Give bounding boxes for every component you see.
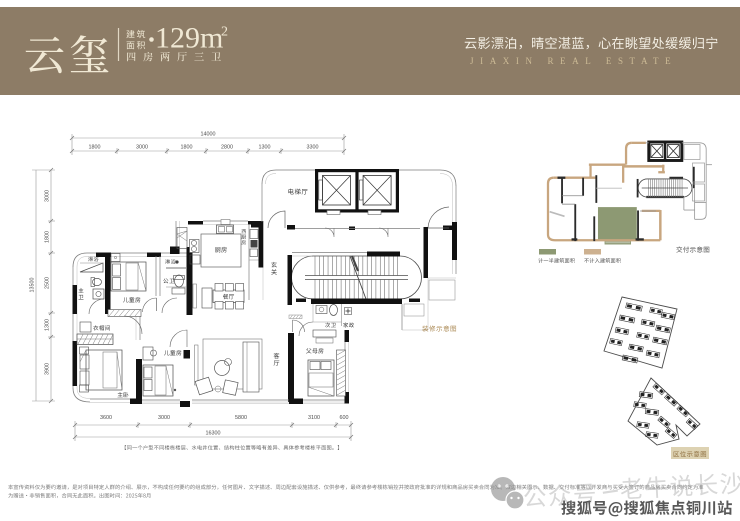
svg-text:14000: 14000 bbox=[201, 132, 216, 138]
svg-text:3100: 3100 bbox=[308, 415, 320, 421]
svg-text:2: 2 bbox=[221, 25, 228, 40]
svg-text:3900: 3900 bbox=[45, 363, 51, 375]
svg-text:5800: 5800 bbox=[235, 415, 247, 421]
svg-text:3000: 3000 bbox=[136, 145, 148, 151]
svg-text:600: 600 bbox=[340, 415, 349, 421]
svg-text:13500: 13500 bbox=[30, 278, 36, 293]
svg-text:1300: 1300 bbox=[259, 145, 271, 151]
svg-text:16300: 16300 bbox=[206, 431, 221, 437]
svg-text:1800: 1800 bbox=[45, 231, 51, 243]
svg-text:3000: 3000 bbox=[45, 190, 51, 202]
svg-text:2800: 2800 bbox=[221, 145, 233, 151]
svg-text:3300: 3300 bbox=[307, 145, 319, 151]
svg-text:3600: 3600 bbox=[100, 415, 112, 421]
svg-text:1800: 1800 bbox=[89, 145, 101, 151]
svg-text:1300: 1300 bbox=[45, 319, 51, 331]
svg-text:2500: 2500 bbox=[45, 277, 51, 289]
svg-text:3000: 3000 bbox=[158, 415, 170, 421]
svg-text:1800: 1800 bbox=[181, 145, 193, 151]
svg-text:129m: 129m bbox=[155, 22, 223, 55]
svg-text:JIAXIN REAL ESTATE: JIAXIN REAL ESTATE bbox=[470, 56, 677, 66]
